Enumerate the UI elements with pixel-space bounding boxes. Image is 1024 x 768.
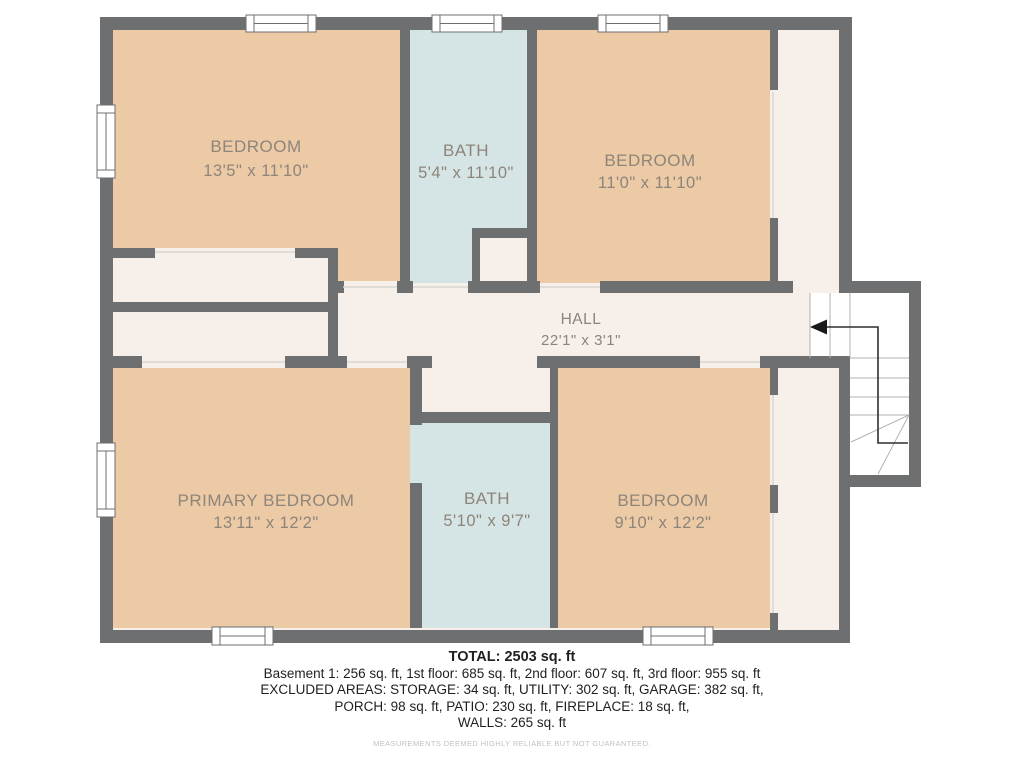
room-dims: 5'10" x 9'7" (443, 512, 530, 530)
window-top-3 (598, 15, 668, 32)
area-summary: TOTAL: 2503 sq. ft Basement 1: 256 sq. f… (0, 649, 1024, 748)
excluded-areas-line-1: EXCLUDED AREAS: STORAGE: 34 sq. ft, UTIL… (0, 682, 1024, 698)
excluded-areas-line-2: PORCH: 98 sq. ft, PATIO: 230 sq. ft, FIR… (0, 699, 1024, 715)
window-top-2 (432, 15, 502, 32)
window-bottom-2 (643, 627, 713, 645)
excluded-areas-line-3: WALLS: 265 sq. ft (0, 715, 1024, 731)
bath-2-door-reveal (410, 425, 422, 483)
floor-areas-line: Basement 1: 256 sq. ft, 1st floor: 685 s… (0, 666, 1024, 682)
window-bottom-1 (212, 627, 273, 645)
room-name: HALL (561, 311, 602, 328)
room-dims: 11'0" x 11'10" (598, 174, 702, 192)
window-top-1 (246, 15, 316, 32)
room-name: BEDROOM (617, 491, 708, 510)
window-left-1 (97, 105, 115, 178)
bath-1-nook-floor (480, 238, 527, 283)
room-name: BATH (464, 489, 510, 508)
room-dims: 5'4" x 11'10" (418, 164, 514, 182)
room-name: PRIMARY BEDROOM (178, 491, 355, 510)
total-area: TOTAL: 2503 sq. ft (0, 649, 1024, 666)
floor-plan-drawing: BEDROOM 13'5" x 11'10" BATH 5'4" x 11'10… (0, 0, 1024, 650)
window-left-2 (97, 443, 115, 517)
room-dims: 22'1" x 3'1" (541, 332, 621, 349)
room-dims: 13'11" x 12'2" (213, 514, 318, 532)
stairwell (850, 293, 909, 475)
room-name: BATH (443, 141, 489, 160)
room-dims: 9'10" x 12'2" (615, 514, 712, 532)
floor-plan-page: BEDROOM 13'5" x 11'10" BATH 5'4" x 11'10… (0, 0, 1024, 768)
room-dims: 13'5" x 11'10" (203, 162, 308, 180)
measurement-disclaimer: MEASUREMENTS DEEMED HIGHLY RELIABLE BUT … (0, 739, 1024, 748)
room-name: BEDROOM (604, 151, 695, 170)
room-name: BEDROOM (210, 137, 301, 156)
